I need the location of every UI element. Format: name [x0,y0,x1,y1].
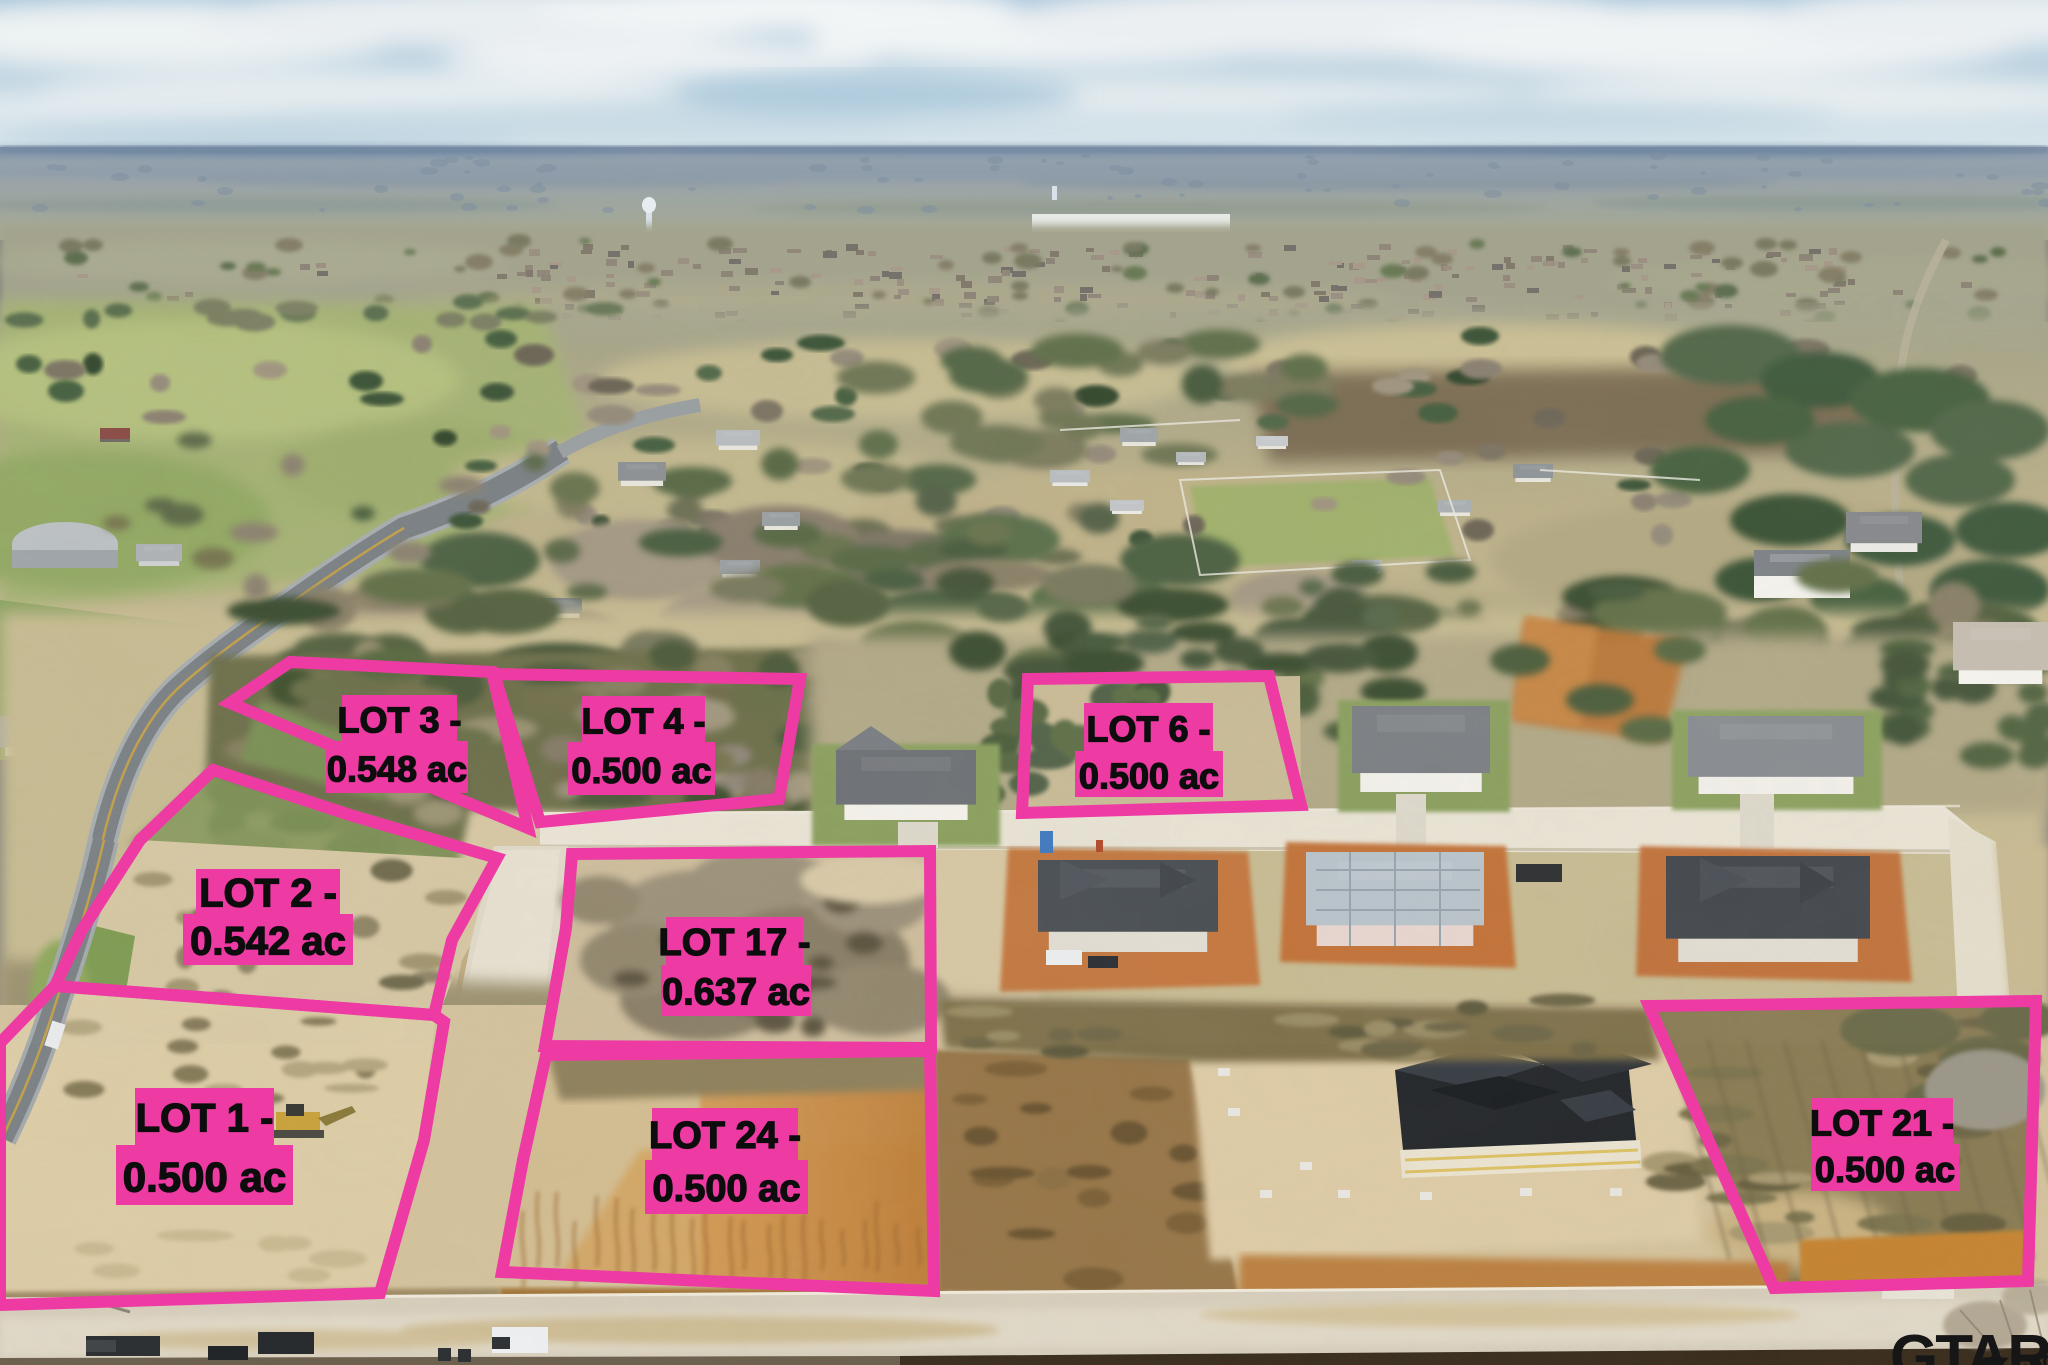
svg-text:0.500 ac: 0.500 ac [571,750,711,791]
svg-text:LOT 3 -: LOT 3 - [338,700,462,741]
svg-text:LOT 6 -: LOT 6 - [1087,709,1211,750]
svg-text:0.542 ac: 0.542 ac [190,920,346,964]
svg-text:0.500 ac: 0.500 ac [1079,756,1219,797]
svg-text:.com: .com [2022,1347,2048,1365]
svg-text:LOT 24 -: LOT 24 - [649,1115,801,1157]
svg-text:LOT 1 -: LOT 1 - [136,1097,274,1141]
svg-text:0.500 ac: 0.500 ac [123,1154,287,1201]
svg-text:LOT 4 -: LOT 4 - [582,701,706,742]
svg-text:0.500 ac: 0.500 ac [1815,1149,1955,1190]
svg-text:LOT 2 -: LOT 2 - [199,872,337,916]
svg-text:LOT 21 -: LOT 21 - [1810,1103,1954,1144]
svg-text:0.637 ac: 0.637 ac [662,972,810,1014]
svg-text:0.500 ac: 0.500 ac [653,1168,801,1210]
svg-text:LOT 17 -: LOT 17 - [658,922,810,964]
svg-text:0.548 ac: 0.548 ac [327,749,467,790]
